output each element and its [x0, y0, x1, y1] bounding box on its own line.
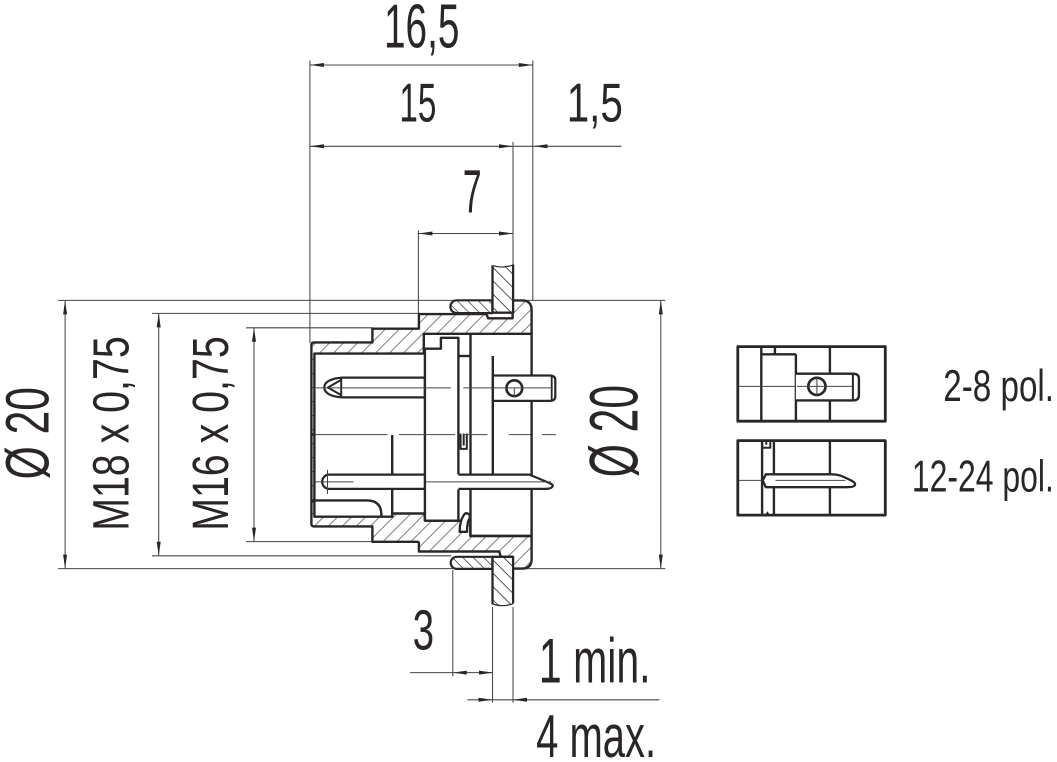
svg-text:M16 x 0,75: M16 x 0,75	[182, 336, 239, 531]
svg-text:7: 7	[463, 157, 482, 225]
svg-text:12-24 pol.: 12-24 pol.	[912, 452, 1054, 501]
svg-text:15: 15	[399, 72, 436, 133]
svg-text:M18 x 0,75: M18 x 0,75	[83, 336, 140, 531]
svg-text:1,5: 1,5	[567, 72, 623, 133]
svg-text:2-8 pol.: 2-8 pol.	[943, 362, 1054, 411]
svg-text:3: 3	[413, 599, 434, 662]
svg-text:1 min.: 1 min.	[539, 626, 651, 696]
svg-text:Ø 20: Ø 20	[576, 385, 653, 477]
svg-text:Ø 20: Ø 20	[0, 387, 62, 479]
svg-text:4 max.: 4 max.	[536, 703, 656, 762]
svg-text:16,5: 16,5	[384, 0, 459, 61]
